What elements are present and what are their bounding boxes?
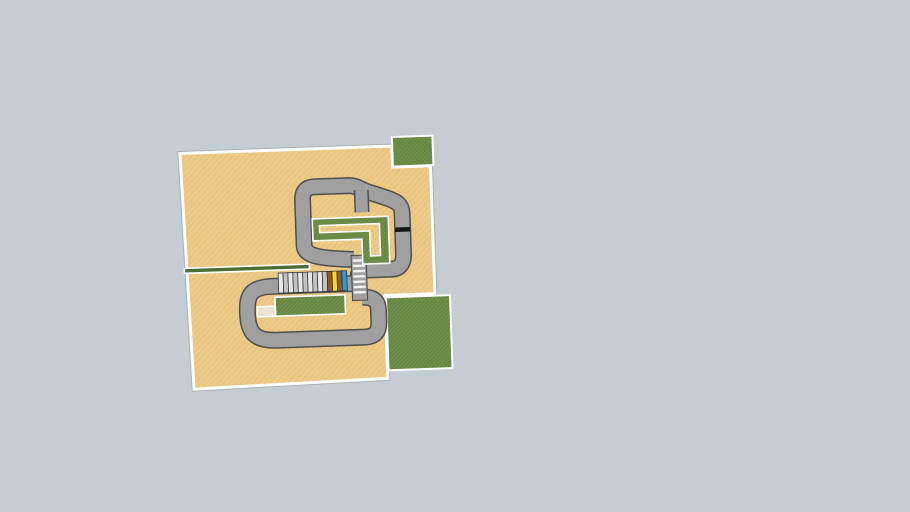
pit-garages — [278, 271, 347, 293]
grass-field-top-right — [392, 136, 434, 167]
model-canvas — [0, 0, 910, 512]
track-model — [180, 135, 453, 389]
grass-island-pit — [275, 295, 346, 316]
grid-stripe — [354, 291, 366, 294]
start-finish-line — [395, 227, 410, 232]
viewport-3d[interactable] — [0, 0, 910, 512]
pit-wall-tail — [257, 306, 275, 317]
track-chicane-stub — [361, 190, 362, 212]
grass-field-bottom-right — [386, 295, 453, 370]
garage-stall-blue — [342, 271, 348, 291]
grid-stripe — [353, 270, 365, 273]
grid-stripe — [353, 280, 365, 283]
grid-stripe — [354, 286, 366, 289]
grid-stripe — [353, 275, 365, 278]
